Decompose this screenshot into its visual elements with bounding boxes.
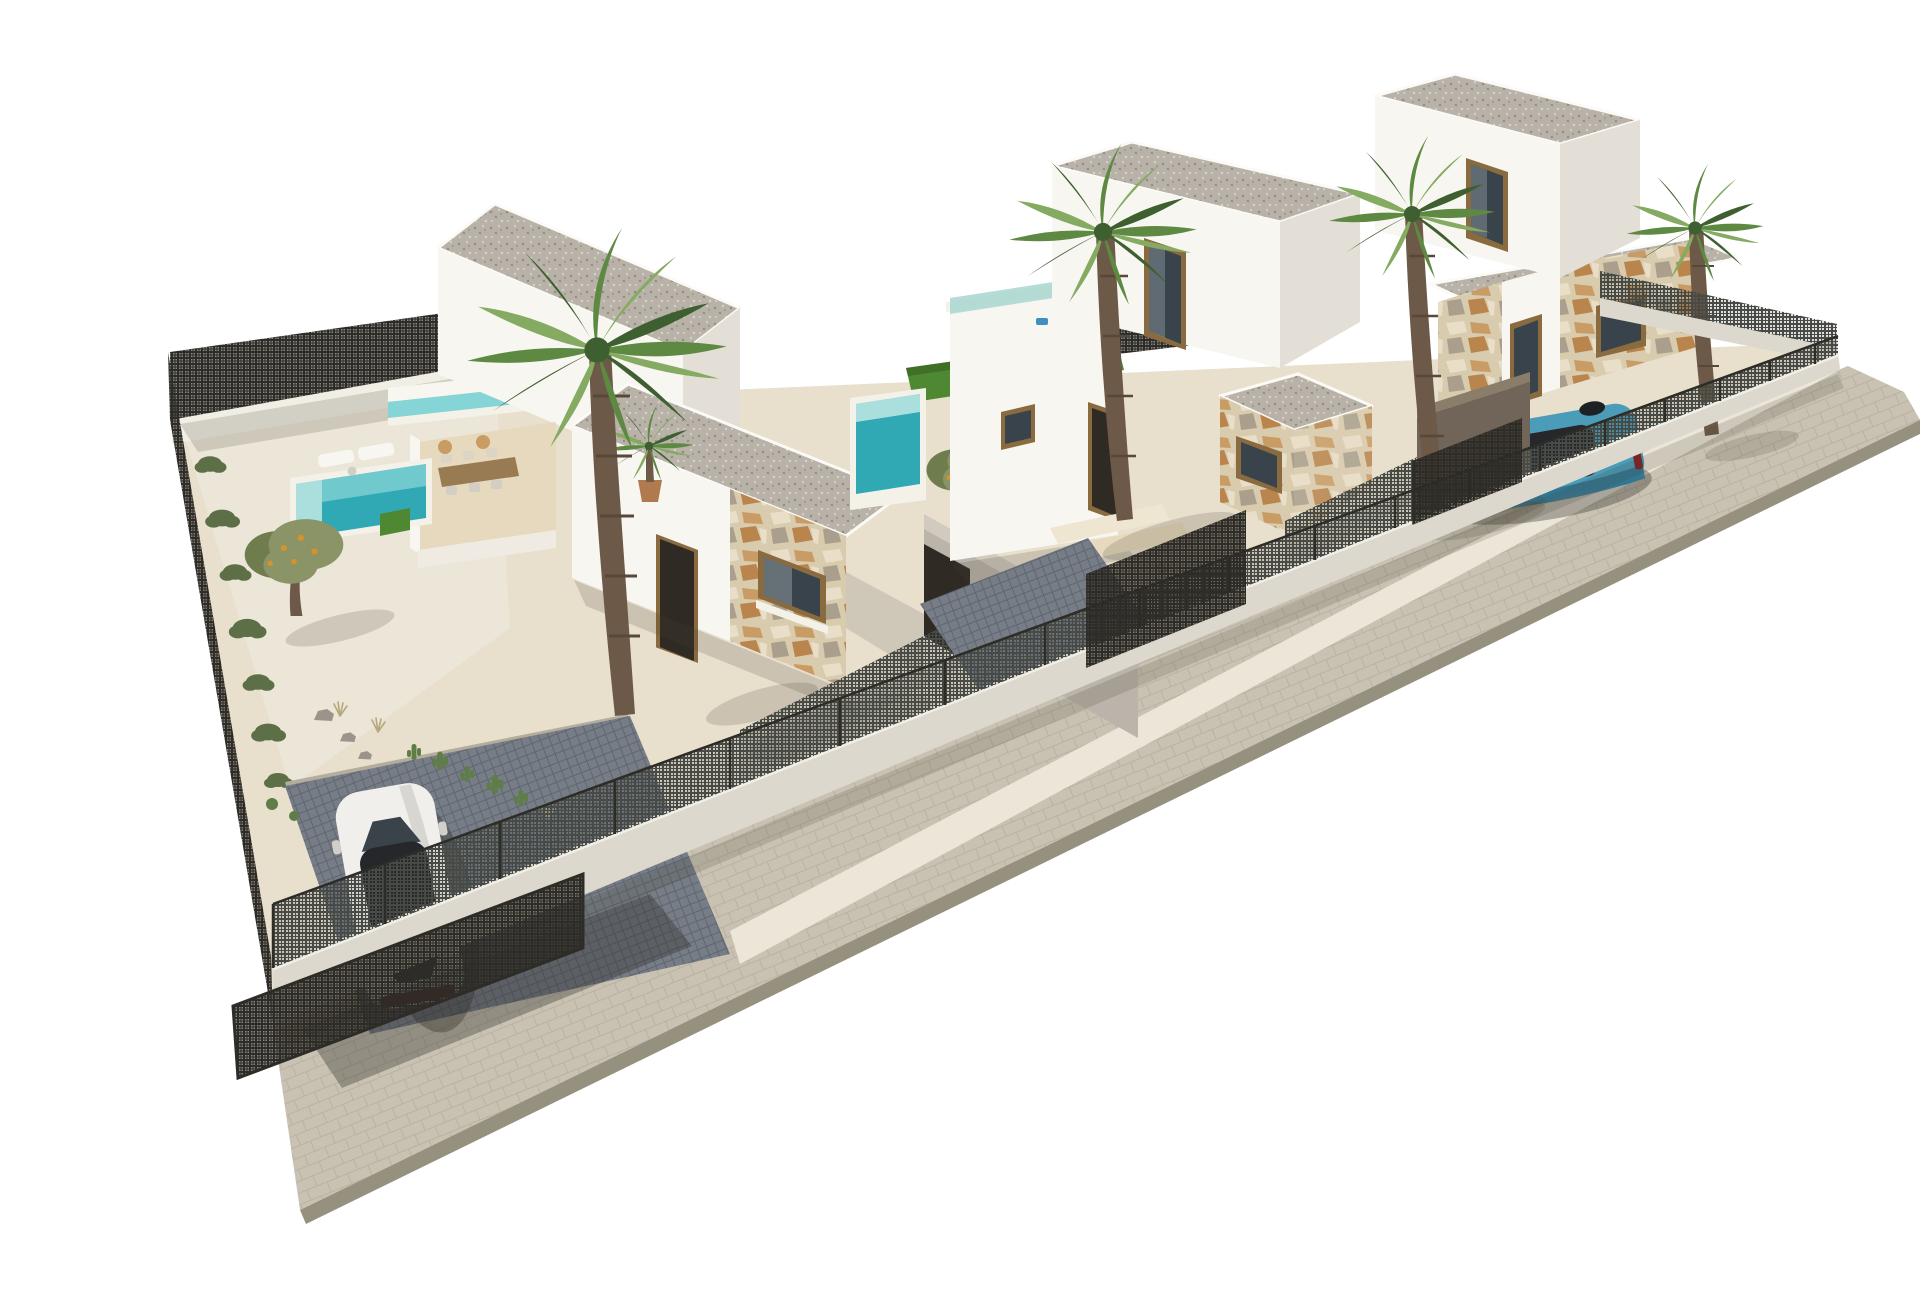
render-canvas (40, 16, 1920, 1296)
round-stool (476, 435, 490, 449)
villa-3-upper-window (1466, 158, 1508, 252)
villa-2-upper-door (1144, 238, 1186, 350)
round-stool (438, 440, 452, 454)
villa-2-side-window (1001, 404, 1035, 450)
ball-cactus (289, 811, 299, 821)
ball-cactus (266, 798, 278, 810)
blue-towel (1036, 318, 1048, 325)
architectural-render (40, 16, 1920, 1296)
